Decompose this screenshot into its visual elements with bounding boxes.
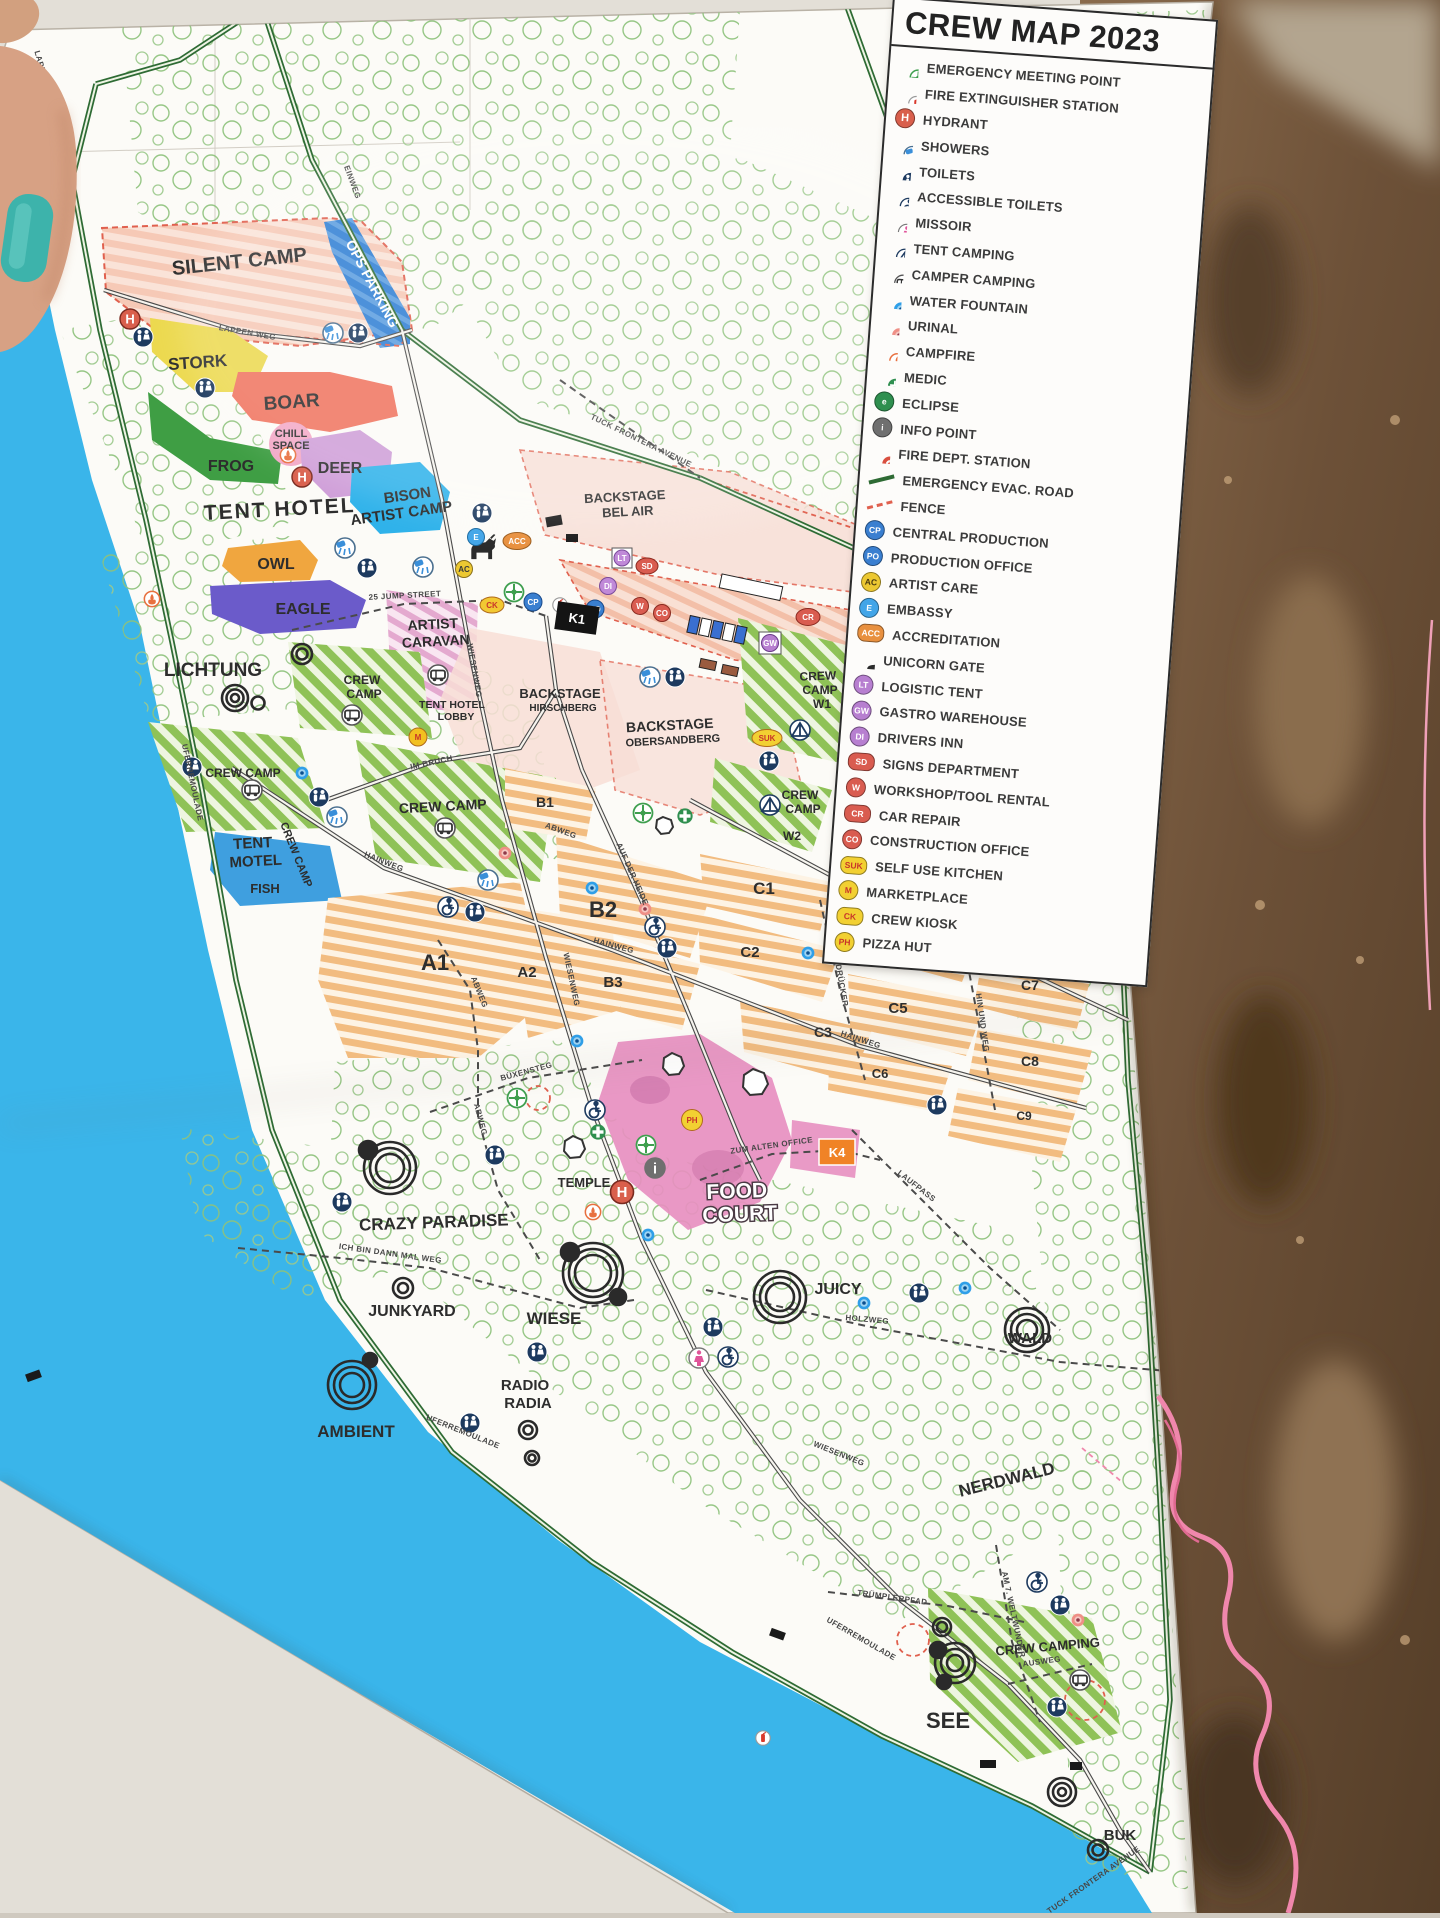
label-radio: RADIO (501, 1377, 550, 1394)
hydrant-icon (120, 309, 140, 329)
embassy-badge: E (468, 529, 485, 546)
hydrant-icon: H (894, 108, 915, 129)
label-crew-camp-2: CREW CAMP (205, 766, 280, 780)
logistic-tent-icon: LT (853, 674, 874, 695)
pizza-hut-badge: PH (682, 1110, 703, 1131)
zone-c9: C9 (1016, 1109, 1032, 1123)
label-crew-w2-1: CREW (782, 788, 819, 802)
svg-text:GW: GW (763, 639, 777, 648)
k4-box: K4 (819, 1139, 855, 1165)
svg-text:CP: CP (527, 598, 539, 607)
signs-department-badge: SD (636, 558, 658, 574)
legend-items: EMERGENCY MEETING POINT FIRE EXTINGUISHE… (824, 46, 1212, 985)
info-point-icon (644, 1157, 666, 1179)
label-temple: TEMPLE (558, 1175, 611, 1190)
label-buk: BUK (1104, 1827, 1137, 1844)
camper-camping-icon (883, 262, 904, 283)
label-tent-hotel-lobby-2: LOBBY (438, 711, 475, 723)
self-use-kitchen-badge: SUK (752, 730, 782, 747)
zone-c6: C6 (872, 1066, 889, 1081)
label-see: SEE (926, 1708, 970, 1733)
label-court: COURT (702, 1202, 778, 1228)
zone-c2: C2 (740, 944, 759, 961)
label-fish: FISH (250, 881, 280, 896)
label-ambient: AMBIENT (317, 1422, 395, 1441)
label-artist: ARTIST (407, 615, 459, 634)
evac-road-icon (868, 474, 894, 484)
k1-box: K1 (554, 601, 599, 635)
workshop-badge: W (632, 598, 649, 615)
label-radia: RADIA (504, 1395, 552, 1412)
svg-text:DI: DI (604, 582, 612, 591)
car-repair-badge: CR (796, 609, 820, 626)
info-point-icon: i (872, 417, 893, 438)
accessible-toilets-icon (889, 185, 910, 206)
shower-icon (892, 134, 913, 155)
campfire-icon (877, 340, 898, 361)
label-backstage-hirschberg-2: HIRSCHBERG (529, 703, 596, 714)
label-junkyard: JUNKYARD (368, 1303, 455, 1320)
label-wald: WALD (1008, 1330, 1052, 1347)
zone-b1: B1 (536, 794, 554, 810)
label-tent-motel-2: MOTEL (229, 852, 282, 872)
eclipse-icon: e (874, 391, 895, 412)
fence-icon (867, 500, 893, 509)
label-camp: CAMP (346, 687, 381, 701)
label-food: FOOD (706, 1179, 767, 1204)
artist-care-badge: AC (456, 561, 473, 578)
label-eagle: EAGLE (275, 601, 330, 618)
svg-text:AC: AC (458, 565, 470, 574)
crew-kiosk-badge: CK (480, 597, 504, 613)
drivers-inn-icon: DI (849, 725, 870, 746)
gastro-warehouse-badge: GW (759, 632, 781, 654)
pizza-hut-icon: PH (834, 931, 855, 952)
urinal-icon (879, 314, 900, 335)
svg-text:M: M (415, 733, 422, 742)
construction-office-icon: CO (841, 828, 862, 849)
zone-a1: A1 (421, 950, 449, 975)
workshop-icon: W (845, 777, 866, 798)
label-backstage-hirschberg-1: BACKSTAGE (519, 686, 601, 701)
embassy-icon: E (858, 597, 879, 618)
svg-text:SD: SD (641, 562, 652, 571)
medic-icon (875, 365, 896, 386)
central-production-badge: CP (524, 593, 542, 611)
unicorn-gate-icon (855, 648, 876, 669)
missoir-icon (887, 211, 908, 232)
water-fountain-icon (881, 288, 902, 309)
label-crew: CREW (344, 673, 381, 687)
label-tent-hotel-lobby-1: TENT HOTEL (419, 699, 485, 711)
svg-text:E: E (473, 533, 479, 542)
label-crew-w1-3: W1 (813, 697, 831, 711)
svg-text:W: W (636, 602, 644, 611)
zone-c7: C7 (1021, 977, 1039, 993)
zone-a2: A2 (517, 964, 536, 981)
map-photo-svg: i H (0, 0, 1440, 1913)
production-office-icon: PO (862, 545, 883, 566)
marketplace-icon: M (838, 880, 859, 901)
central-production-icon: CP (864, 520, 885, 541)
zone-c5: C5 (888, 1000, 907, 1017)
accreditation-badge: ACC (503, 533, 531, 550)
missoir-icon (689, 1348, 709, 1368)
svg-text:LT: LT (617, 554, 626, 563)
artist-care-icon: AC (860, 571, 881, 592)
toilets-icon (891, 159, 912, 180)
label-crew-w1-2: CAMP (802, 683, 837, 697)
gastro-warehouse-icon: GW (851, 700, 872, 721)
svg-text:CR: CR (802, 613, 814, 622)
zone-b2: B2 (589, 897, 617, 922)
tent-camping-icon (885, 237, 906, 258)
fire-extinguisher-icon (896, 82, 917, 103)
label-juicy: JUICY (814, 1281, 861, 1298)
label-crew-w1-1: CREW (799, 668, 837, 683)
label-crew-w2-2: CAMP (785, 802, 820, 816)
zone-c8: C8 (1021, 1053, 1039, 1069)
crew-kiosk-icon: CK (836, 907, 864, 927)
construction-office-badge: CO (654, 605, 671, 622)
signs-department-icon: SD (847, 752, 875, 772)
svg-text:CO: CO (656, 609, 668, 618)
label-crew-w2-3: W2 (783, 829, 801, 843)
svg-text:K4: K4 (829, 1145, 846, 1160)
label-owl: OWL (257, 556, 295, 573)
photo-of-crew-map: i H (0, 0, 1440, 1913)
svg-text:K1: K1 (568, 610, 587, 627)
emergency-meeting-point-icon (898, 57, 919, 78)
label-frog: FROG (208, 458, 254, 475)
label-tent-motel-1: TENT (233, 834, 273, 853)
svg-text:CK: CK (486, 601, 498, 610)
svg-text:PH: PH (686, 1116, 697, 1125)
zone-c1: C1 (753, 879, 775, 898)
zone-b3: B3 (603, 974, 622, 991)
accreditation-icon: ACC (857, 624, 885, 644)
self-use-kitchen-icon: SUK (840, 855, 868, 875)
marketplace-badge: M (409, 728, 427, 746)
fire-dept-station-icon (870, 442, 891, 463)
svg-text:ACC: ACC (508, 537, 526, 546)
hydrant-icon (611, 1181, 634, 1204)
car-repair-icon: CR (843, 804, 871, 824)
label-lichtung: LICHTUNG (164, 660, 262, 681)
svg-text:SUK: SUK (759, 734, 776, 743)
label-wiese: WIESE (527, 1309, 582, 1328)
drivers-inn-badge: DI (600, 578, 617, 595)
logistic-tent-badge: LT (612, 548, 632, 568)
